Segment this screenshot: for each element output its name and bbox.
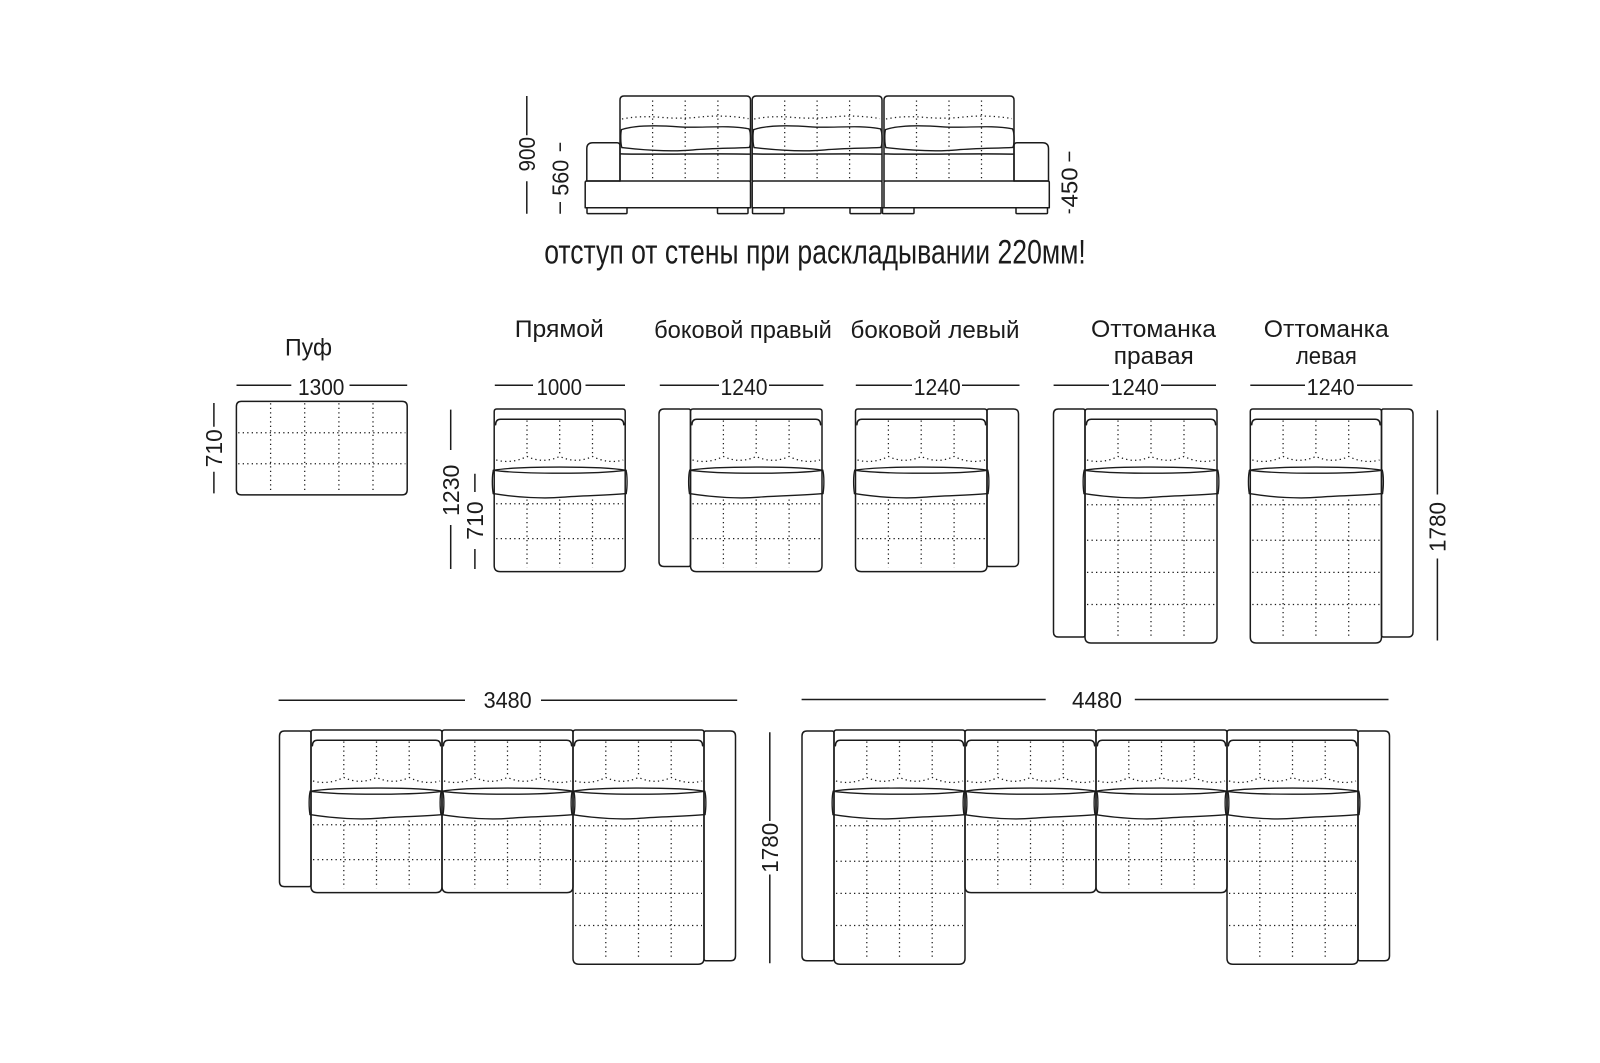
- svg-text:правая: правая: [1114, 343, 1194, 370]
- svg-text:1000: 1000: [537, 374, 583, 400]
- svg-text:боковой левый: боковой левый: [851, 317, 1020, 344]
- svg-text:1780: 1780: [1425, 502, 1451, 552]
- svg-text:710: 710: [201, 429, 227, 467]
- svg-text:Пуф: Пуф: [285, 335, 332, 362]
- svg-text:Оттоманка: Оттоманка: [1264, 316, 1390, 343]
- svg-text:1240: 1240: [1307, 374, 1355, 400]
- svg-text:710: 710: [462, 501, 488, 540]
- svg-text:900: 900: [514, 137, 540, 172]
- svg-text:1780: 1780: [757, 823, 783, 873]
- svg-text:1240: 1240: [1111, 374, 1159, 400]
- svg-text:левая: левая: [1296, 343, 1357, 370]
- svg-text:боковой правый: боковой правый: [654, 317, 832, 344]
- svg-text:1230: 1230: [438, 465, 464, 516]
- svg-text:1240: 1240: [914, 374, 961, 400]
- svg-text:Прямой: Прямой: [515, 316, 604, 343]
- svg-text:1240: 1240: [721, 374, 768, 400]
- svg-text:450: 450: [1057, 167, 1083, 207]
- svg-text:отступ от стены при раскладыва: отступ от стены при раскладывании 220мм!: [544, 234, 1086, 272]
- svg-text:1300: 1300: [298, 374, 344, 400]
- svg-text:3480: 3480: [484, 687, 532, 713]
- svg-text:Оттоманка: Оттоманка: [1091, 316, 1217, 343]
- svg-text:560: 560: [548, 160, 574, 196]
- svg-text:4480: 4480: [1072, 687, 1122, 713]
